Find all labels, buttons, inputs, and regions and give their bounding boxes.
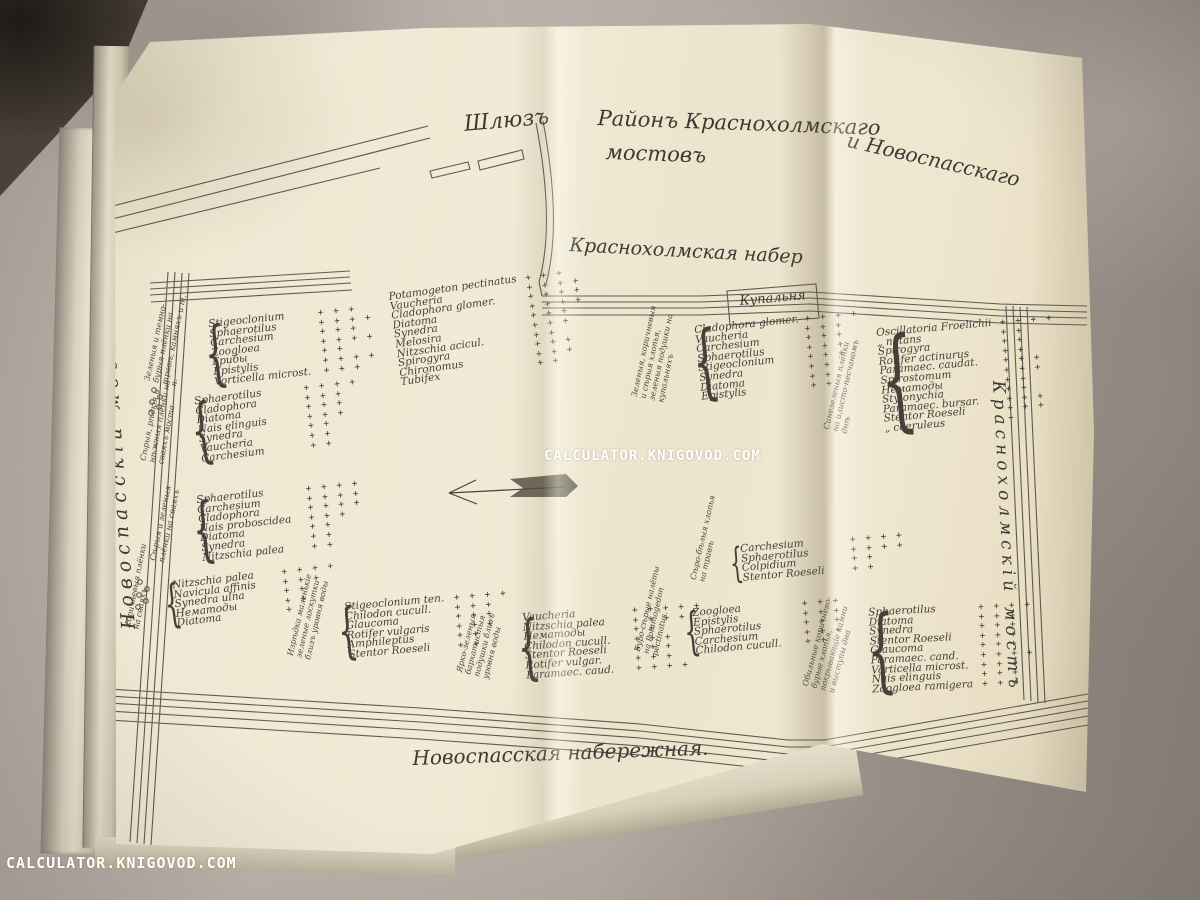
species-abundance: + + + xyxy=(982,676,1021,689)
sluice-channel-line xyxy=(89,138,430,225)
brace-icon: { xyxy=(864,603,898,696)
species-station: Синезеленыя плёнки на илисто-песчаномъ д… xyxy=(830,312,1062,437)
brace-icon: { xyxy=(515,610,542,682)
species-abundance: + xyxy=(286,604,295,616)
sluice-channel-line xyxy=(85,126,428,213)
species-abundance: + + xyxy=(852,561,876,574)
species-station: Обильные коричнево-бурые хлопья, покрыва… xyxy=(822,599,1036,696)
sluice-gate-icon xyxy=(478,150,524,170)
watermark-text: CALCULATOR.KNIGOVOD.COM xyxy=(6,854,237,872)
upper-embankment-lines xyxy=(542,298,1087,312)
map-title: мостовъ xyxy=(605,140,706,167)
book-photo-scene: Шлюзъ Районъ Краснохолмскаго и Новоспасс… xyxy=(0,0,1200,900)
sluice-channel-line xyxy=(96,168,380,237)
watermark-text: CALCULATOR.KNIGOVOD.COM xyxy=(544,448,761,464)
sluice-gate-icon xyxy=(430,162,470,178)
current-arrow-icon xyxy=(449,474,578,504)
species-abundance: + xyxy=(1008,412,1017,424)
sluice-channel-line xyxy=(543,121,553,284)
lower-embankment-lines xyxy=(92,688,1088,740)
